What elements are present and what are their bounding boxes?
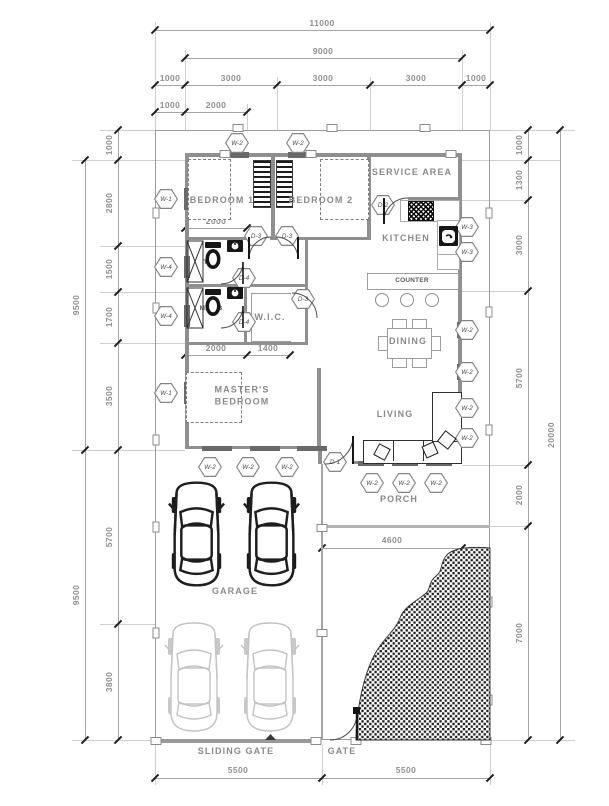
car-driveway-1 xyxy=(165,623,223,731)
door-swing-d4-tb1 xyxy=(221,262,243,284)
sliding-gate-arrow xyxy=(265,734,276,740)
toilet-tb1 xyxy=(205,242,221,269)
toilet-tb2 xyxy=(205,289,221,316)
gate-door-swing xyxy=(330,713,357,740)
counter-stools xyxy=(376,294,439,307)
door-swing-d3-wic xyxy=(292,293,317,318)
car-driveway-2 xyxy=(241,623,299,731)
lavatory-tb1 xyxy=(227,240,243,252)
kitchen-sink xyxy=(439,226,458,246)
door-swing-d1-entry xyxy=(325,436,353,464)
car-garage-1 xyxy=(169,483,224,586)
plan-graphics xyxy=(0,0,609,806)
shower-tb2 xyxy=(187,288,203,328)
door-swing-d3-bedroom1 xyxy=(249,237,271,259)
door-swing-d2-kitchen xyxy=(384,198,408,224)
door-swing-d4-tb2 xyxy=(221,306,243,328)
sofa-pillows xyxy=(374,431,456,460)
gate-post xyxy=(353,707,360,714)
floor-plan-canvas: 11000 9000 1000 3000 3000 3000 1000 1000… xyxy=(0,0,609,806)
garden-hatch-area xyxy=(356,547,490,740)
lavatory-tb2 xyxy=(227,287,243,299)
door-swing-d3-bedroom2 xyxy=(276,237,298,259)
shower-tb1 xyxy=(187,241,203,282)
car-garage-2 xyxy=(244,483,299,586)
